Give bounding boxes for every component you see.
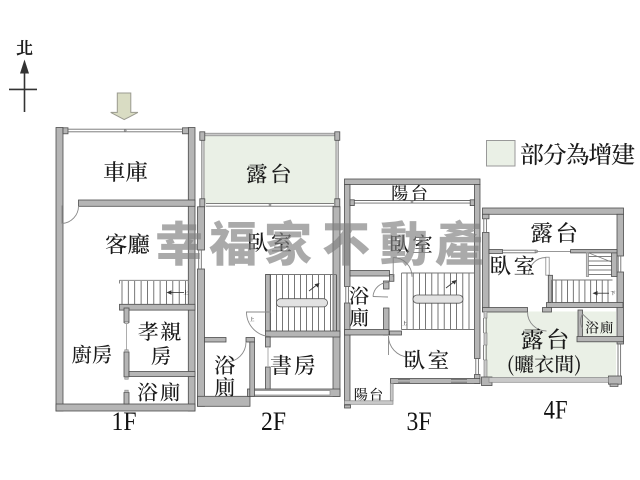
- svg-text:3F: 3F: [407, 407, 432, 436]
- svg-text:4F: 4F: [544, 396, 568, 425]
- svg-text:1F: 1F: [112, 407, 137, 436]
- svg-text:2F: 2F: [261, 407, 286, 436]
